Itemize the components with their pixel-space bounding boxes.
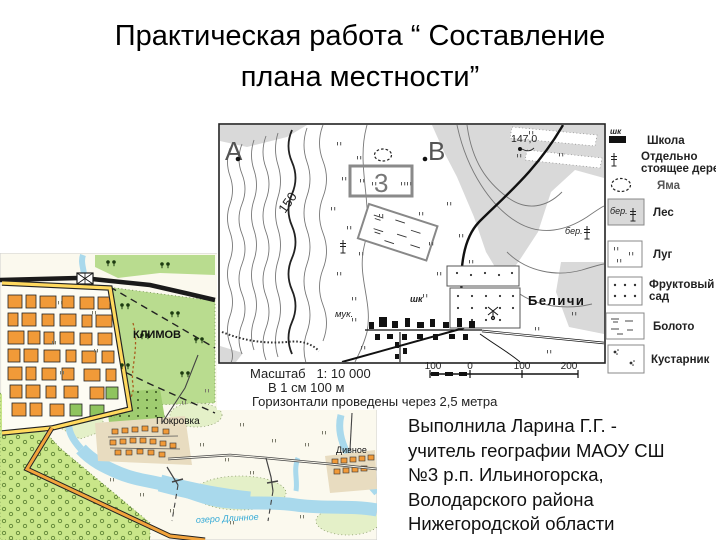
scalebar-label-3: 200 (561, 361, 578, 372)
legend-label-shrub: Кустарник (651, 354, 710, 366)
legend-label-lone-tree-1: Отдельно (641, 151, 697, 163)
pit-on-map (375, 149, 392, 161)
map-legend: шк Школа Отдельно стоящее дерево Яма бер… (606, 127, 716, 373)
area-number-label: 3 (374, 168, 388, 198)
village-divnoe (325, 450, 377, 493)
scale-text-2: В 1 см 100 м (268, 380, 344, 395)
swamp-icon (606, 313, 644, 339)
legend-label-orchard-1: Фруктовый (649, 279, 714, 291)
elevation-dot (518, 147, 522, 151)
slide: Практическая работа “ Составление плана … (0, 0, 720, 540)
school-icon (609, 136, 626, 143)
credit-text: Выполнила Ларина Г.Г. - учитель географи… (408, 414, 714, 537)
legend-item-meadow: Луг (608, 241, 672, 267)
legend-forest-abbr: бер. (610, 206, 628, 216)
school-abbr-on-map: шк (410, 294, 423, 304)
credit-line-2: учитель географии МАОУ СШ (408, 439, 714, 464)
legend-label-orchard-2: сад (649, 291, 670, 303)
credit-line-5: Нижегородской области (408, 512, 714, 537)
legend-item-school: шк Школа (609, 127, 685, 147)
legend-label-meadow: Луг (653, 249, 672, 261)
legend-label-school: Школа (647, 135, 685, 147)
page-title: Практическая работа “ Составление плана … (0, 16, 720, 97)
pit-icon (612, 179, 631, 192)
elevation-label: 147,0 (511, 133, 537, 145)
credit-line-4: Володарского района (408, 488, 714, 513)
scale-text-1: Масштаб 1: 10 000 (250, 366, 371, 381)
shrub-icon (608, 345, 644, 373)
legend-item-shrub: Кустарник (608, 345, 710, 373)
village-belichi-label: Беличи (528, 293, 585, 308)
school-icon-label: шк (610, 127, 622, 136)
legend-label-swamp: Болото (653, 321, 694, 333)
topo-map-svg: А В 147,0 150 3 шк мук. Беличи бер. Масш… (217, 122, 716, 410)
legend-item-swamp: Болото (606, 313, 694, 339)
legend-label-pit: Яма (657, 180, 681, 192)
village-divnoe-label: Дивное (336, 445, 367, 455)
scalebar-label-0: 100 (425, 361, 442, 372)
meadow-icon (608, 241, 642, 267)
title-line-2: плана местности” (0, 57, 720, 98)
town-klimov (2, 283, 130, 433)
point-b-dot (423, 157, 428, 162)
legend-label-forest: Лес (653, 207, 674, 219)
scale-block: Масштаб 1: 10 000 В 1 см 100 м Горизонта… (250, 361, 578, 409)
point-a-dot (236, 157, 241, 162)
forest-abbr-on-map: бер. (565, 226, 583, 236)
legend-label-lone-tree-2: стоящее дерево (641, 163, 716, 175)
legend-item-forest: бер. Лес (608, 199, 674, 225)
orchard-icon (608, 277, 642, 305)
credit-line-3: №3 р.п. Ильиногорска, (408, 463, 714, 488)
title-line-1: Практическая работа “ Составление (0, 16, 720, 57)
point-b-label: В (428, 136, 445, 166)
mill-abbr-on-map: мук. (335, 309, 353, 320)
legend-item-lone-tree: Отдельно стоящее дерево (611, 151, 716, 175)
point-a-label: А (225, 136, 243, 166)
town-klimov-label: КЛИМОВ (133, 329, 181, 341)
legend-item-orchard: Фруктовый сад (608, 277, 714, 305)
bw-topographic-plan: А В 147,0 150 3 шк мук. Беличи бер. Масш… (217, 122, 716, 410)
scale-text-3: Горизонтали проведены через 2,5 метра (252, 394, 498, 409)
legend-item-pit: Яма (612, 179, 681, 193)
credit-line-1: Выполнила Ларина Г.Г. - (408, 414, 714, 439)
lone-tree-icon (611, 153, 617, 166)
